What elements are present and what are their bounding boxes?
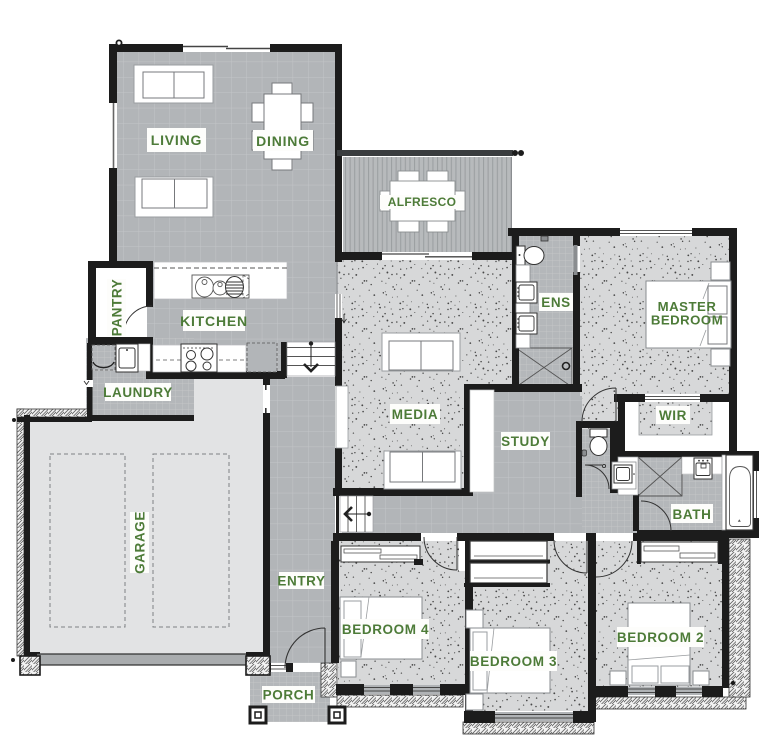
svg-text:ENS: ENS [541,295,571,310]
svg-text:BATH: BATH [673,507,712,522]
svg-text:ENTRY: ENTRY [277,574,325,589]
svg-text:BEDROOM 4: BEDROOM 4 [342,622,429,637]
svg-text:BEDROOM 2: BEDROOM 2 [617,630,704,645]
svg-text:STUDY: STUDY [501,434,550,449]
svg-text:LAUNDRY: LAUNDRY [103,385,173,400]
svg-text:GARAGE: GARAGE [133,511,148,574]
svg-text:MEDIA: MEDIA [392,407,439,422]
svg-text:WIR: WIR [659,408,687,423]
svg-text:KITCHEN: KITCHEN [180,313,248,329]
svg-text:DINING: DINING [256,133,310,149]
svg-text:PORCH: PORCH [263,688,315,703]
svg-text:BEDROOM 3: BEDROOM 3 [470,654,557,669]
svg-text:PANTRY: PANTRY [110,279,125,337]
svg-text:BEDROOM: BEDROOM [651,313,723,328]
svg-text:ALFRESCO: ALFRESCO [388,195,456,209]
svg-text:LIVING: LIVING [151,132,202,148]
